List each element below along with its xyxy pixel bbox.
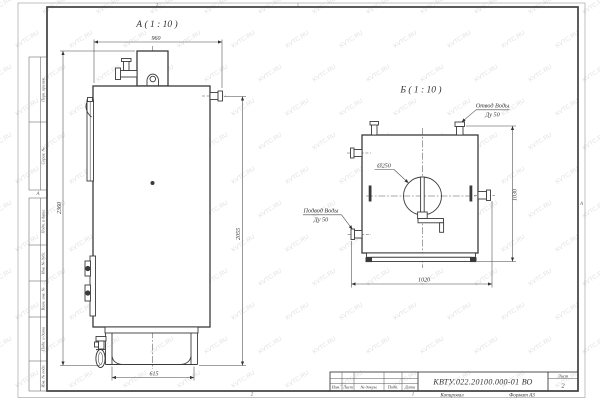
watermark-text: KVTC.RU: [0, 268, 13, 287]
watermark-text: KVTC.RU: [0, 336, 13, 355]
watermark-text: KVTC.RU: [582, 64, 600, 83]
watermark-text: KVTC.RU: [528, 132, 553, 151]
inlet-label-line2: Ду 50: [313, 217, 329, 224]
watermark-text: KVTC.RU: [231, 302, 256, 321]
watermark-text: KVTC.RU: [285, 30, 310, 49]
watermark-text: KVTC.RU: [582, 336, 600, 355]
watermark-layer: KVTC.RUKVTC.RUKVTC.RUKVTC.RUKVTC.RUKVTC.…: [0, 0, 600, 390]
body-center-mark: [151, 181, 155, 185]
watermark-text: KVTC.RU: [501, 30, 526, 49]
watermark-text: KVTC.RU: [123, 370, 148, 389]
margin-box-label: Справ. №: [41, 147, 46, 164]
chimney-box: [116, 51, 169, 86]
watermark-text: KVTC.RU: [501, 302, 526, 321]
margin-box-label: Подп. и дата: [41, 210, 46, 235]
watermark-text: KVTC.RU: [0, 132, 13, 151]
outlet-label-line2: Ду 50: [484, 112, 500, 119]
dim-960-value: 960: [152, 36, 161, 42]
watermark-text: KVTC.RU: [285, 370, 310, 389]
pedestal: [105, 327, 198, 365]
watermark-text: KVTC.RU: [582, 0, 600, 16]
watermark-text: KVTC.RU: [258, 64, 283, 83]
watermark-text: KVTC.RU: [42, 132, 67, 151]
watermark-text: KVTC.RU: [528, 336, 553, 355]
watermark-text: KVTC.RU: [231, 98, 256, 117]
zone-number-bottom-left: 2: [251, 393, 254, 398]
watermark-text: KVTC.RU: [420, 336, 445, 355]
watermark-text: KVTC.RU: [69, 30, 94, 49]
watermark-text: KVTC.RU: [555, 234, 580, 253]
view-a-label: А ( 1 : 10 ): [135, 19, 177, 30]
watermark-text: KVTC.RU: [231, 234, 256, 253]
watermark-text: KVTC.RU: [366, 336, 391, 355]
outlet-fitting: [455, 122, 465, 135]
watermark-text: KVTC.RU: [42, 336, 67, 355]
watermark-text: KVTC.RU: [15, 30, 40, 49]
zone-letter-right: А: [579, 202, 584, 207]
watermark-text: KVTC.RU: [258, 336, 283, 355]
dim-1030-value: 1030: [513, 189, 519, 201]
watermark-text: KVTC.RU: [42, 64, 67, 83]
watermark-text: KVTC.RU: [528, 200, 553, 219]
watermark-text: KVTC.RU: [555, 302, 580, 321]
inlet-label-line1: Подвод Воды: [302, 208, 338, 215]
watermark-text: KVTC.RU: [366, 64, 391, 83]
title-col-list: Лист: [342, 385, 353, 390]
title-col-podp: Подп.: [387, 385, 399, 390]
zone-number-bottom-right: 1: [412, 393, 415, 398]
watermark-text: KVTC.RU: [285, 98, 310, 117]
watermark-text: KVTC.RU: [474, 64, 499, 83]
watermark-text: KVTC.RU: [312, 268, 337, 287]
footer-format-label: Формат А3: [509, 393, 535, 399]
dim-2055-value: 2055: [236, 228, 242, 240]
watermark-text: KVTC.RU: [501, 234, 526, 253]
margin-box-label: Перв. примен.: [41, 77, 46, 103]
watermark-text: KVTC.RU: [258, 200, 283, 219]
watermark-text: KVTC.RU: [177, 370, 202, 389]
top-stub-fitting: [370, 122, 379, 136]
hinge-bar-right: [470, 186, 473, 202]
title-col-ndocum: № докум.: [359, 385, 377, 390]
watermark-text: KVTC.RU: [393, 98, 418, 117]
margin-box-label: Подп. и дата: [41, 327, 46, 352]
watermark-text: KVTC.RU: [339, 302, 364, 321]
watermark-text: KVTC.RU: [312, 64, 337, 83]
watermark-text: KVTC.RU: [0, 64, 13, 83]
watermark-text: KVTC.RU: [204, 64, 229, 83]
watermark-text: KVTC.RU: [285, 166, 310, 185]
watermark-text: KVTC.RU: [339, 166, 364, 185]
watermark-text: KVTC.RU: [258, 268, 283, 287]
watermark-text: KVTC.RU: [258, 132, 283, 151]
margin-box-label: Взам. инв. №: [41, 287, 46, 310]
watermark-text: KVTC.RU: [231, 370, 256, 389]
watermark-text: KVTC.RU: [582, 132, 600, 151]
hinge-bar-left: [369, 186, 372, 202]
base-bands: [366, 253, 477, 262]
outlet-label-line1: Отвод Воды: [476, 103, 509, 110]
dim-1020-value: 1020: [418, 278, 430, 284]
sheet-label: Лист: [557, 373, 569, 378]
view-b: Б ( 1 : 10 ): [302, 85, 518, 288]
watermark-text: KVTC.RU: [15, 302, 40, 321]
boiler-body: [93, 86, 210, 327]
watermark-text: KVTC.RU: [42, 200, 67, 219]
watermark-text: KVTC.RU: [285, 302, 310, 321]
leader-inlet: Подвод Воды Ду 50: [302, 208, 352, 230]
title-col-data: Дата: [404, 385, 415, 390]
watermark-text: KVTC.RU: [393, 302, 418, 321]
watermark-text: KVTC.RU: [69, 234, 94, 253]
footer-copy-label: Копировал: [439, 393, 464, 399]
watermark-text: KVTC.RU: [339, 98, 364, 117]
watermark-text: KVTC.RU: [312, 132, 337, 151]
zone-letter-left: А: [35, 192, 40, 197]
watermark-text: KVTC.RU: [582, 200, 600, 219]
title-col-izm: Изм.: [331, 385, 341, 390]
watermark-text: KVTC.RU: [582, 268, 600, 287]
watermark-text: KVTC.RU: [447, 30, 472, 49]
left-lever-strip: [86, 98, 94, 182]
watermark-text: KVTC.RU: [447, 302, 472, 321]
watermark-text: KVTC.RU: [15, 234, 40, 253]
top-view-body: [362, 135, 478, 253]
watermark-text: KVTC.RU: [339, 30, 364, 49]
watermark-text: KVTC.RU: [312, 336, 337, 355]
watermark-text: KVTC.RU: [528, 64, 553, 83]
watermark-text: KVTC.RU: [474, 268, 499, 287]
watermark-text: KVTC.RU: [528, 268, 553, 287]
watermark-text: KVTC.RU: [42, 268, 67, 287]
watermark-text: KVTC.RU: [15, 98, 40, 117]
watermark-text: KVTC.RU: [15, 370, 40, 389]
watermark-text: KVTC.RU: [366, 268, 391, 287]
watermark-text: KVTC.RU: [231, 30, 256, 49]
watermark-text: KVTC.RU: [447, 98, 472, 117]
watermark-text: KVTC.RU: [0, 200, 13, 219]
watermark-text: KVTC.RU: [150, 336, 175, 355]
watermark-text: KVTC.RU: [474, 336, 499, 355]
watermark-text: KVTC.RU: [231, 166, 256, 185]
watermark-text: KVTC.RU: [555, 30, 580, 49]
title-block: Изм. Лист № докум. Подп. Дата КВТУ.022.2…: [330, 372, 578, 391]
margin-box-label: Инв. № подл.: [41, 364, 46, 388]
watermark-text: KVTC.RU: [501, 166, 526, 185]
watermark-text: KVTC.RU: [420, 64, 445, 83]
watermark-text: KVTC.RU: [15, 166, 40, 185]
drawing-canvas: KVTC.RUKVTC.RUKVTC.RUKVTC.RUKVTC.RUKVTC.…: [0, 0, 600, 400]
dim-615-value: 615: [150, 372, 159, 378]
margin-box-label: Инв. № дубл.: [41, 252, 46, 276]
watermark-text: KVTC.RU: [204, 336, 229, 355]
watermark-text: KVTC.RU: [285, 234, 310, 253]
watermark-text: KVTC.RU: [393, 30, 418, 49]
watermark-text: KVTC.RU: [177, 30, 202, 49]
watermark-text: KVTC.RU: [555, 166, 580, 185]
view-b-label: Б ( 1 : 10 ): [399, 85, 441, 96]
diameter-label: Ø250: [376, 163, 392, 170]
watermark-text: KVTC.RU: [69, 370, 94, 389]
watermark-text: KVTC.RU: [555, 98, 580, 117]
dim-615: 615: [112, 367, 194, 381]
watermark-text: KVTC.RU: [0, 0, 13, 16]
dim-2360-value: 2360: [57, 202, 63, 214]
document-number: КВТУ.022.20100.000-01 ВО: [432, 378, 532, 387]
watermark-text: KVTC.RU: [123, 30, 148, 49]
drawing-sheet: KVTC.RUKVTC.RUKVTC.RUKVTC.RUKVTC.RUKVTC.…: [0, 0, 600, 400]
